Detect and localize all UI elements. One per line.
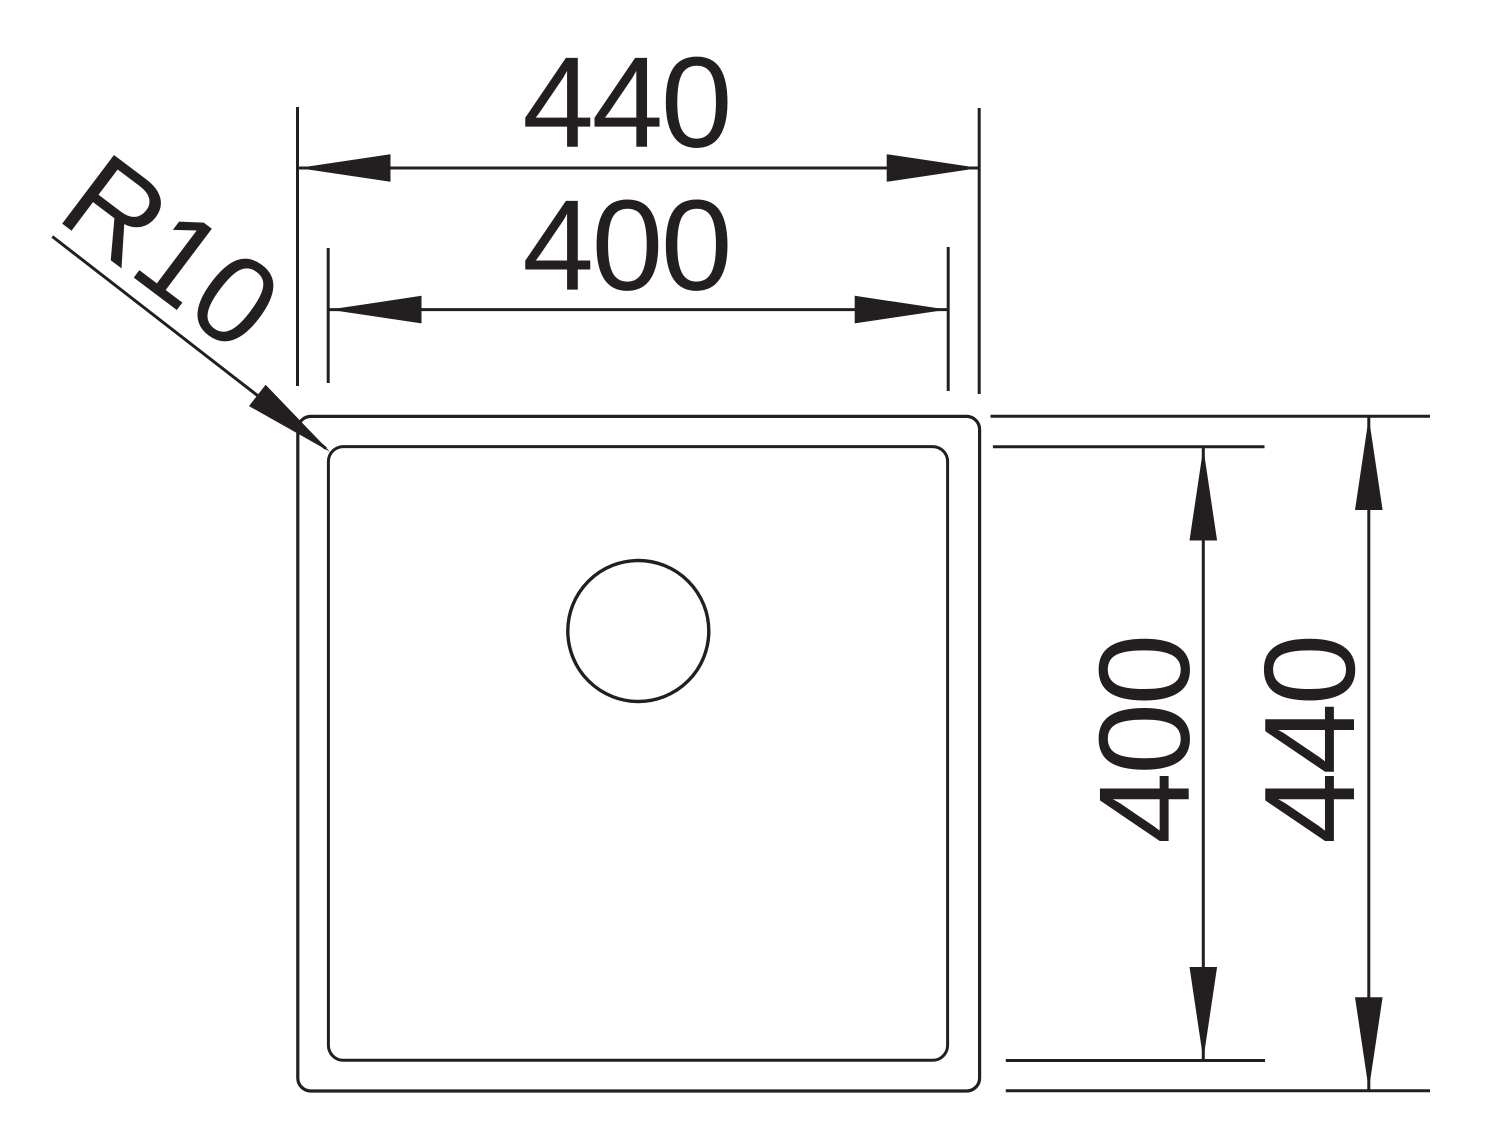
svg-text:440: 440 [1238,636,1382,844]
svg-text:400: 400 [1073,636,1217,844]
svg-text:R10: R10 [38,128,305,377]
svg-text:440: 440 [522,31,730,175]
svg-text:400: 400 [522,174,730,318]
